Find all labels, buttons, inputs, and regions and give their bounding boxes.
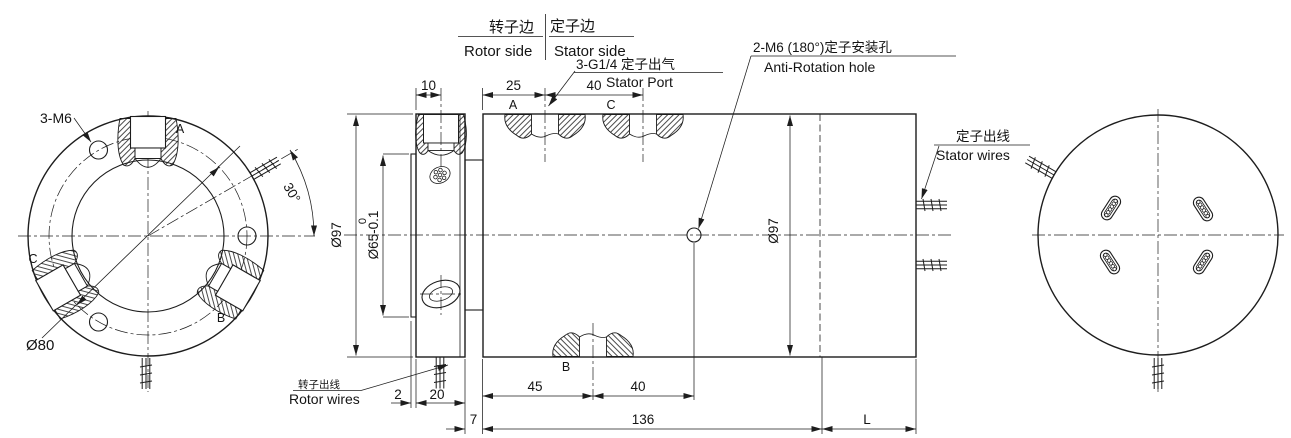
- stator-wire-bundle-2: [916, 259, 947, 271]
- rotor-wire-bundle-section: [434, 358, 446, 389]
- port-label-top-a: A: [509, 98, 518, 112]
- stator-side-cn: 定子边: [550, 18, 595, 35]
- stator-wires-label-cn: 定子出线: [956, 129, 1010, 144]
- dim-bore-dia: Ø65-0.1: [366, 211, 381, 260]
- port-label-a: A: [176, 122, 185, 136]
- stator-wire-bundle-bottom: [1152, 358, 1164, 389]
- dim-bottom-port-spacing: 40: [630, 379, 645, 394]
- rotor-wire-bundle-bottom: [140, 358, 152, 389]
- bolt-circle-dia-label: Ø80: [26, 337, 54, 354]
- dim-back-plate: 2: [394, 387, 402, 402]
- dim-top-port-spacing: 40: [586, 78, 601, 93]
- dim-port-a-offset: 25: [506, 78, 521, 93]
- port-label-top-c: C: [606, 98, 615, 112]
- engineering-drawing: 30° Ø80 3-M6 A B C: [0, 0, 1291, 438]
- drawing-canvas: 30° Ø80 3-M6 A B C: [0, 0, 1291, 438]
- stator-wire-bundle-1: [916, 199, 947, 211]
- dim-spacer-width: 7: [470, 412, 478, 427]
- anti-rotation-label-cn: 2-M6 (180°)定子安装孔: [753, 40, 892, 55]
- dim-port-b-offset: 45: [527, 379, 542, 394]
- stator-port-label-en: Stator Port: [606, 74, 673, 90]
- port-label-c: C: [28, 252, 37, 266]
- stator-side-en: Stator side: [554, 43, 626, 60]
- dim-body-od: Ø97: [766, 218, 781, 244]
- rotor-side-en: Rotor side: [464, 43, 532, 60]
- anti-rotation-label-en: Anti-Rotation hole: [764, 59, 876, 75]
- bolt-holes-label: 3-M6: [40, 110, 72, 126]
- rotor-side-cn: 转子边: [489, 19, 534, 36]
- port-label-bottom-b: B: [562, 360, 570, 374]
- dim-rotor-port-offset: 10: [421, 78, 436, 93]
- stator-wires-label-en: Stator wires: [936, 147, 1010, 163]
- rotor-wires-label-en: Rotor wires: [289, 391, 360, 407]
- rotor-wires-label-cn: 转子出线: [298, 378, 340, 391]
- dim-body-length: 136: [632, 412, 655, 427]
- dim-flange-thickness: 20: [429, 387, 444, 402]
- dim-flange-od: Ø97: [329, 222, 344, 248]
- dim-extension-length: L: [863, 412, 871, 427]
- port-label-b: B: [217, 311, 225, 325]
